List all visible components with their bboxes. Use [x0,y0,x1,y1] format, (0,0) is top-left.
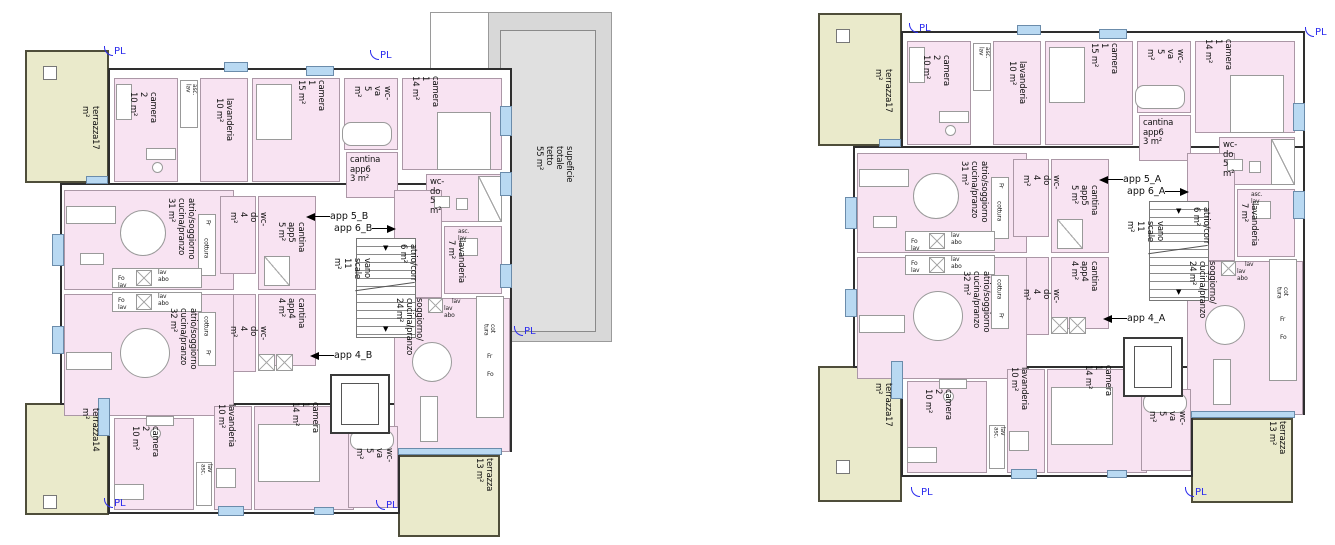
pl-arc-icon [911,487,920,497]
floor-plans-canvas: supeficie totale tetto 55 m² [0,0,1335,545]
sofa-icon [66,206,116,224]
elevator-cab [341,383,379,425]
label-fo: Fo [1280,335,1287,342]
sink-icon [136,294,152,310]
label-lavanderia7: lavanderia 7 m² [1239,203,1259,246]
label-camera2-bottom: camera 2 10 m² [130,426,160,457]
stairs-rail [1148,245,1208,254]
pl-text: PL [380,50,392,61]
pl-text: PL [386,500,398,511]
window-marker [1017,25,1041,35]
label-wcdo4-upper: wc-do 4 m² [228,212,268,226]
arrow-right-icon [1180,188,1189,196]
pl-arc-icon [104,498,113,508]
label-fr: Fr [487,354,492,361]
window-marker [500,264,512,288]
window-marker [1107,470,1127,478]
side-table-icon [873,216,897,228]
app5-pointer: app 5_A [1099,174,1161,185]
pl-mark: PL [376,498,398,511]
app5-pointer: app 5_B [306,211,368,222]
window-marker [306,66,334,76]
label-camera1-14-top: camera 1 14 m² [1203,39,1233,70]
label-app4: app 4_A [1127,313,1165,324]
shower-icon [1271,139,1295,185]
label-wcva-bottom: wc-va 5 m² [354,448,394,462]
pl-mark: PL [370,48,392,61]
sink-icon [258,354,275,371]
leader-line [1112,318,1127,319]
label-camera2-top: camera 2 10 m² [128,92,158,123]
label-cot-tura: cot tura [482,324,495,336]
arrow-left-icon [1099,176,1108,184]
stairs-arrow-icon: ▼ [1176,289,1181,296]
window-marker [845,289,857,317]
window-marker [1011,469,1037,479]
label-shaft-top: asc. lav [977,47,990,58]
stairs-arrow-icon: ▼ [1176,208,1181,215]
arrow-left-icon [1103,315,1112,323]
sink-icon [1051,317,1068,334]
label-cantina-app5: cantina app5 5 m² [1069,185,1099,215]
label-cottura: cottura [202,316,209,336]
label-wcva-top: wc-va 5 m² [352,86,392,100]
dining-table-icon [120,210,166,256]
label-wcdo4-lower: wc-do 4 m² [1021,289,1061,303]
window-marker [500,172,512,196]
label-fr: Fr [997,313,1004,318]
sink-icon [1221,261,1236,276]
app4-pointer: app 4_B [310,350,372,361]
label-terrace-br: terrazza 13 m² [474,458,494,491]
arrow-left-icon [310,352,319,360]
label-wcdo5: wc-do 5 m² [430,178,444,216]
window-marker [500,106,512,136]
label-lav-abo: lav abo [444,306,455,319]
bed-icon [1049,47,1085,103]
label-wcva-top: wc-va 5 m² [1145,49,1185,63]
label-atrio32: atrio/soggiorno cucina/pranzo 32 m² [961,271,991,332]
leader-line [319,355,334,356]
label-camera1-14-top: camera 1 14 m² [410,76,440,107]
stairs-arrow-icon: ▼ [383,326,388,333]
label-soggiorno24: soggiorno/ cucina/pranzo 24 m² [394,298,424,355]
label-lav-abo: lav abo [158,294,169,307]
window-marker [218,506,244,516]
label-fo-lav: Fo lav [911,239,919,252]
sink-icon [1069,317,1086,334]
room-wcdo4-upper [1013,159,1049,237]
window-marker [1293,191,1305,219]
elevator-cab [1134,346,1172,388]
label-atrio-corr: atrio/corr 6 m² [1191,207,1211,244]
window-marker [1099,29,1127,39]
app4-pointer: app 4_A [1103,313,1165,324]
dining-table-icon [913,173,959,219]
dining-table-icon [913,291,963,341]
sink-icon [276,354,293,371]
label-app6: app 6_A [1127,186,1165,197]
window-marker [224,62,248,72]
label-wcdo4-upper: wc-do 4 m² [1021,175,1061,189]
terrace-drain [836,29,850,43]
window-marker [86,176,108,184]
label-cottura: cottura [995,201,1002,221]
label-terrace-bl: terrazza14 m² [80,408,100,452]
toilet-icon [1249,161,1261,173]
label-atrio31: atrio/soggiorno cucina/pranzo 31 m² [959,161,989,222]
terrace-door-band [1191,411,1295,418]
label-vano-scale: vano scale 11 m² [1125,221,1165,242]
label-terrace-tl: terrazza17 m² [873,69,893,113]
sofa-icon [859,315,905,333]
label-app4: app 4_B [334,350,372,361]
label-fo: Fo [487,372,494,379]
pl-mark: PL [911,485,933,498]
label-lav-abo: lav abo [158,270,169,283]
window-marker [845,197,857,229]
label-cottura: cottura [202,238,209,258]
label-lavanderia-top: lavanderia 10 m² [214,98,234,141]
window-marker [52,234,64,266]
label-camera1-15: camera 1 15 m² [1089,43,1119,74]
bed-icon [437,112,491,170]
shower-icon [478,176,502,222]
leader-line [1108,179,1123,180]
sofa-icon [420,396,438,442]
elevator-icon [330,374,390,434]
window-marker [314,507,334,515]
label-lavanderia-bottom: lavanderia 10 m² [1009,367,1029,410]
pl-text: PL [114,498,126,509]
pl-text: PL [1195,487,1207,498]
pl-mark: PL [1305,25,1327,38]
pl-text: PL [919,23,931,34]
arrow-right-icon [387,225,396,233]
app6-pointer: app 6_A [1127,186,1189,197]
label-lav-abo: lav abo [951,257,962,270]
label-lav-abo: lav abo [951,233,962,246]
label-fr: Fr [997,183,1004,188]
pl-arc-icon [909,23,918,33]
label-fo-lav: Fo lav [118,298,126,311]
label-terrace-tl: terrazza17 m² [80,106,100,150]
app6-pointer: app 6_B [334,223,396,234]
label-vano-scale: vano scale 11 m² [332,258,372,279]
label-fr: Fr [1280,317,1285,324]
pl-text: PL [1315,27,1327,38]
pl-mark: PL [514,324,536,337]
sink-icon [136,270,152,286]
label-cantina-app4: cantina app4 4 m² [1069,261,1099,291]
label-fo-lav: Fo lav [911,261,919,274]
window-marker [1293,103,1305,131]
sink-icon [929,257,945,273]
stairs-rail [355,282,415,291]
pl-mark: PL [104,44,126,57]
bed-icon [256,84,292,140]
label-fo-lav: Fo lav [118,276,126,289]
label-lav: lav [1245,262,1253,269]
pl-arc-icon [376,500,385,510]
leader-line [315,216,330,217]
label-cantina-app5: cantina app5 5 m² [276,222,306,252]
pl-arc-icon [1185,487,1194,497]
label-lavanderia7: lavanderia 7 m² [446,240,466,283]
pl-mark: PL [104,496,126,509]
sink-icon [428,298,443,313]
desk-icon [939,111,969,123]
label-camera1-bottom: camera 1 14 m² [290,402,320,433]
label-cantina-app6: cantina app6 3 m² [350,156,380,185]
label-camera2-bottom: camera 2 10 m² [923,389,953,420]
label-atrio-corr: atrio/corr 6 m² [398,244,418,281]
label-wcdo5: wc-do 5 m² [1223,141,1237,179]
terrace-door-band [398,448,502,455]
label-app5: app 5_A [1123,174,1161,185]
sofa-icon [1213,359,1231,405]
label-lav-abo: lav abo [1237,269,1248,282]
pl-text: PL [114,46,126,57]
label-cot-tura: cot tura [1275,287,1288,299]
bed-icon [1230,75,1284,133]
toilet-icon [456,198,468,210]
label-fr: Fr [204,350,211,355]
label-shaft-bottom: lav asc. [992,427,1005,438]
pl-arc-icon [514,326,523,336]
chair-icon [152,162,163,173]
arrow-left-icon [306,213,315,221]
leader-line [372,228,387,229]
label-wcdo4-lower: wc-do 4 m² [228,326,268,340]
desk-icon [146,416,174,426]
label-camera2-top: camera 2 10 m² [921,55,951,86]
label-terrace-br: terrazza 13 m² [1267,421,1287,454]
pl-arc-icon [370,50,379,60]
sink-icon [929,233,945,249]
terrace-drain [43,495,57,509]
desk-icon [146,148,176,160]
label-cantina-app4: cantina app4 4 m² [276,298,306,328]
stairs-arrow-icon: ▼ [383,245,388,252]
desk-icon [939,379,967,389]
label-wcva-bottom: wc-va 5 m² [1147,411,1187,425]
label-fr: Fr [204,220,211,225]
label-lavanderia-top: lavanderia 10 m² [1007,61,1027,104]
label-app6: app 6_B [334,223,372,234]
label-camera1-bottom: camera 1 14 m² [1083,365,1113,396]
label-app5: app 5_B [330,211,368,222]
elevator-icon [1123,337,1183,397]
pl-text: PL [921,487,933,498]
bed-icon [907,447,937,463]
pl-text: PL [524,326,536,337]
label-camera1-15: camera 1 15 m² [296,80,326,111]
pl-mark: PL [909,21,931,34]
label-soggiorno24: soggiorno/ cucina/pranzo 24 m² [1187,261,1217,318]
label-cantina-app6: cantina app6 3 m² [1143,119,1173,148]
chair-icon [945,125,956,136]
washer-icon [1009,431,1029,451]
washer-icon [216,468,236,488]
pl-mark: PL [1185,485,1207,498]
roof-label: supeficie totale tetto 55 m² [534,146,574,182]
pl-arc-icon [104,46,113,56]
window-marker [52,326,64,354]
window-marker [879,139,901,147]
label-lav: lav [452,299,460,306]
pl-arc-icon [1305,27,1314,37]
bathtub-icon [342,122,392,146]
dining-table-icon [120,328,170,378]
label-terrace-bl: terrazza17 m² [873,383,893,427]
sofa-icon [859,169,909,187]
label-cottura: cottura [995,279,1002,299]
room-wcdo4-upper [220,196,256,274]
leader-line [1165,191,1180,192]
label-atrio31: atrio/soggiorno cucina/pranzo 31 m² [166,198,196,259]
sofa-icon [66,352,112,370]
terrace-drain [836,460,850,474]
shower-icon [264,256,290,286]
label-lavanderia-bottom: lavanderia 10 m² [216,404,236,447]
label-shaft-bottom: lav asc. [199,464,212,475]
terrace-drain [43,66,57,80]
side-table-icon [80,253,104,265]
label-shaft-top: asc. lav [184,84,197,95]
shower-icon [1057,219,1083,249]
bathtub-icon [1135,85,1185,109]
label-atrio32: atrio/soggiorno cucina/pranzo 32 m² [168,308,198,369]
